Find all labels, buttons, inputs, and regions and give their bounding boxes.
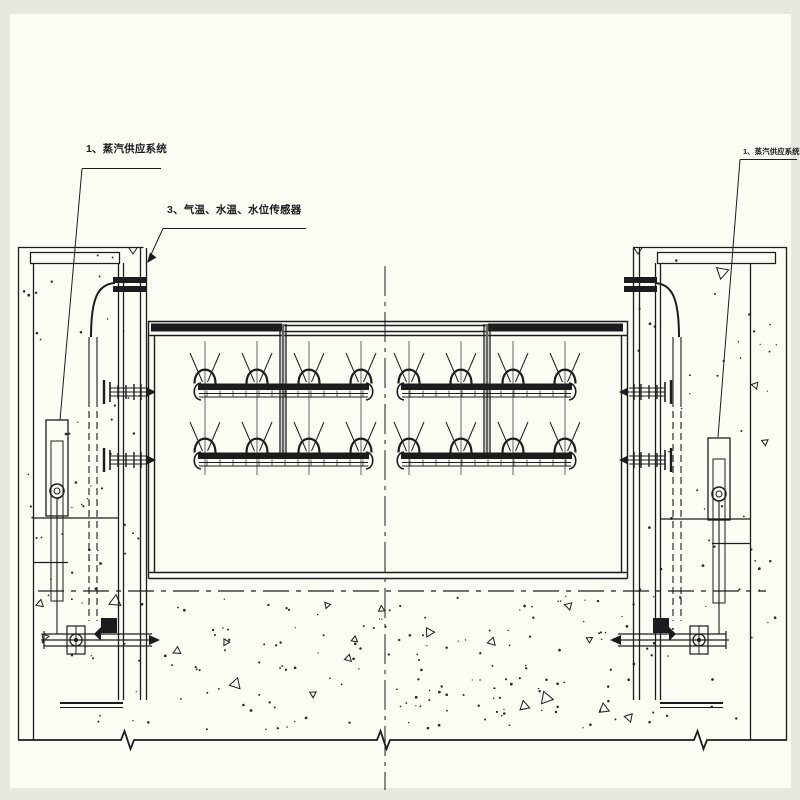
cad-drawing-page: 1、蒸汽供应系统 3、气温、水温、水位传感器 1、蒸汽供应系统: [0, 0, 800, 800]
label-sensors: 3、气温、水温、水位传感器: [167, 203, 302, 216]
steam-inlet-pipe-right: [624, 277, 657, 283]
steam-inlet-pipe-left-2: [113, 286, 146, 292]
pipe-elbow-right: [653, 618, 669, 633]
steam-header-right: [488, 324, 623, 332]
pipe-elbow-left: [101, 618, 117, 633]
steam-inlet-pipe-right-2: [624, 286, 657, 292]
valve-center-left: [74, 638, 78, 642]
label-steam-supply-right: 1、蒸汽供应系统: [743, 146, 800, 156]
bottom-steam-pipe-left: [41, 631, 152, 649]
steam-header-left: [151, 324, 282, 332]
label-steam-supply-left: 1、蒸汽供应系统: [86, 142, 167, 155]
gate-heating-system-drawing: 1、蒸汽供应系统 3、气温、水温、水位传感器 1、蒸汽供应系统: [0, 0, 800, 800]
valve-center-right: [697, 638, 701, 642]
drawing-paper: [10, 14, 791, 788]
bottom-steam-pipe-right: [618, 631, 729, 649]
steam-inlet-pipe-left: [113, 277, 146, 283]
